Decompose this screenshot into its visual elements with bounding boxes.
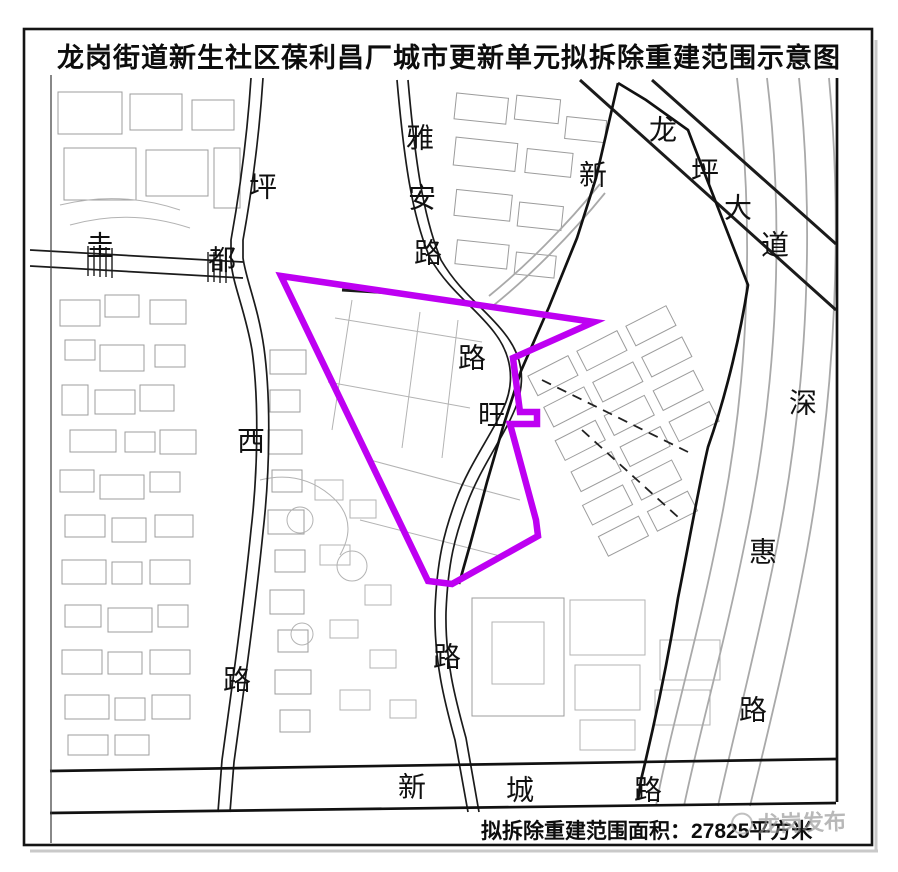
road-label-xincheng-road-21: 路 xyxy=(634,775,662,806)
blocks-top-left xyxy=(58,92,240,228)
road-label-wang-road-14: 旺 xyxy=(478,400,506,431)
longping-avenue xyxy=(580,80,836,310)
road-label-yaan-road-6: 安 xyxy=(408,183,436,214)
watermark-text: 龙岗发布 xyxy=(757,804,846,839)
road-label-wang-road-13: 路 xyxy=(458,343,486,374)
xincheng-road xyxy=(50,759,836,813)
road-label-pingxi-road-1: 西 xyxy=(237,426,265,457)
road-label-wang-road-15: 路 xyxy=(433,642,461,673)
watermark: 龙岗发布 xyxy=(730,804,846,840)
road-label-shenhui-road-18: 路 xyxy=(739,695,767,726)
industrial-blocks-right xyxy=(519,306,755,556)
map-title: 龙岗街道新生社区葆利昌厂城市更新单元拟拆除重建范围示意图 xyxy=(26,36,872,75)
watermark-logo-icon xyxy=(731,812,754,835)
road-label-longping-avenue-11: 大 xyxy=(724,193,752,224)
road-label-guidu-road-4: 都 xyxy=(208,245,236,276)
figure-demolition-map: 坪西路圭都雅安路新龙坪大道路旺路深惠路新城路 龙岗街道新生社区葆利昌厂城市更新单… xyxy=(0,0,898,872)
road-labels-group: 坪西路圭都雅安路新龙坪大道路旺路深惠路新城路 xyxy=(86,115,817,806)
road-label-longping-avenue-12: 道 xyxy=(761,230,789,261)
figure-frame xyxy=(24,29,878,852)
road-label-longping-avenue-9: 龙 xyxy=(649,115,677,146)
road-label-shenhui-road-16: 深 xyxy=(789,388,817,419)
road-label-yaan-road-7: 路 xyxy=(414,238,442,269)
residential-blocks-left xyxy=(60,295,196,755)
demolition-boundary-group xyxy=(281,276,594,584)
road-label-guidu-road-3: 圭 xyxy=(86,231,114,262)
area-note-label: 拟拆除重建范围面积： xyxy=(481,820,691,843)
road-label-xincheng-road-20: 城 xyxy=(506,775,534,806)
road-label-xincheng-road-19: 新 xyxy=(398,772,426,803)
blocks-bottom-middle xyxy=(472,598,720,750)
road-label-pingxi-road-0: 坪 xyxy=(249,172,277,203)
demolition-boundary xyxy=(281,276,594,584)
road-label-shenhui-road-17: 惠 xyxy=(749,537,777,568)
road-label-yaan-road-5: 雅 xyxy=(406,123,434,154)
road-label-pingxi-road-2: 路 xyxy=(223,665,251,696)
road-label-longping-avenue-10: 坪 xyxy=(691,157,719,188)
residential-blocks-middle xyxy=(260,350,416,732)
road-label-xin-road-8: 新 xyxy=(579,160,607,191)
map-canvas: 坪西路圭都雅安路新龙坪大道路旺路深惠路新城路 xyxy=(0,0,898,872)
